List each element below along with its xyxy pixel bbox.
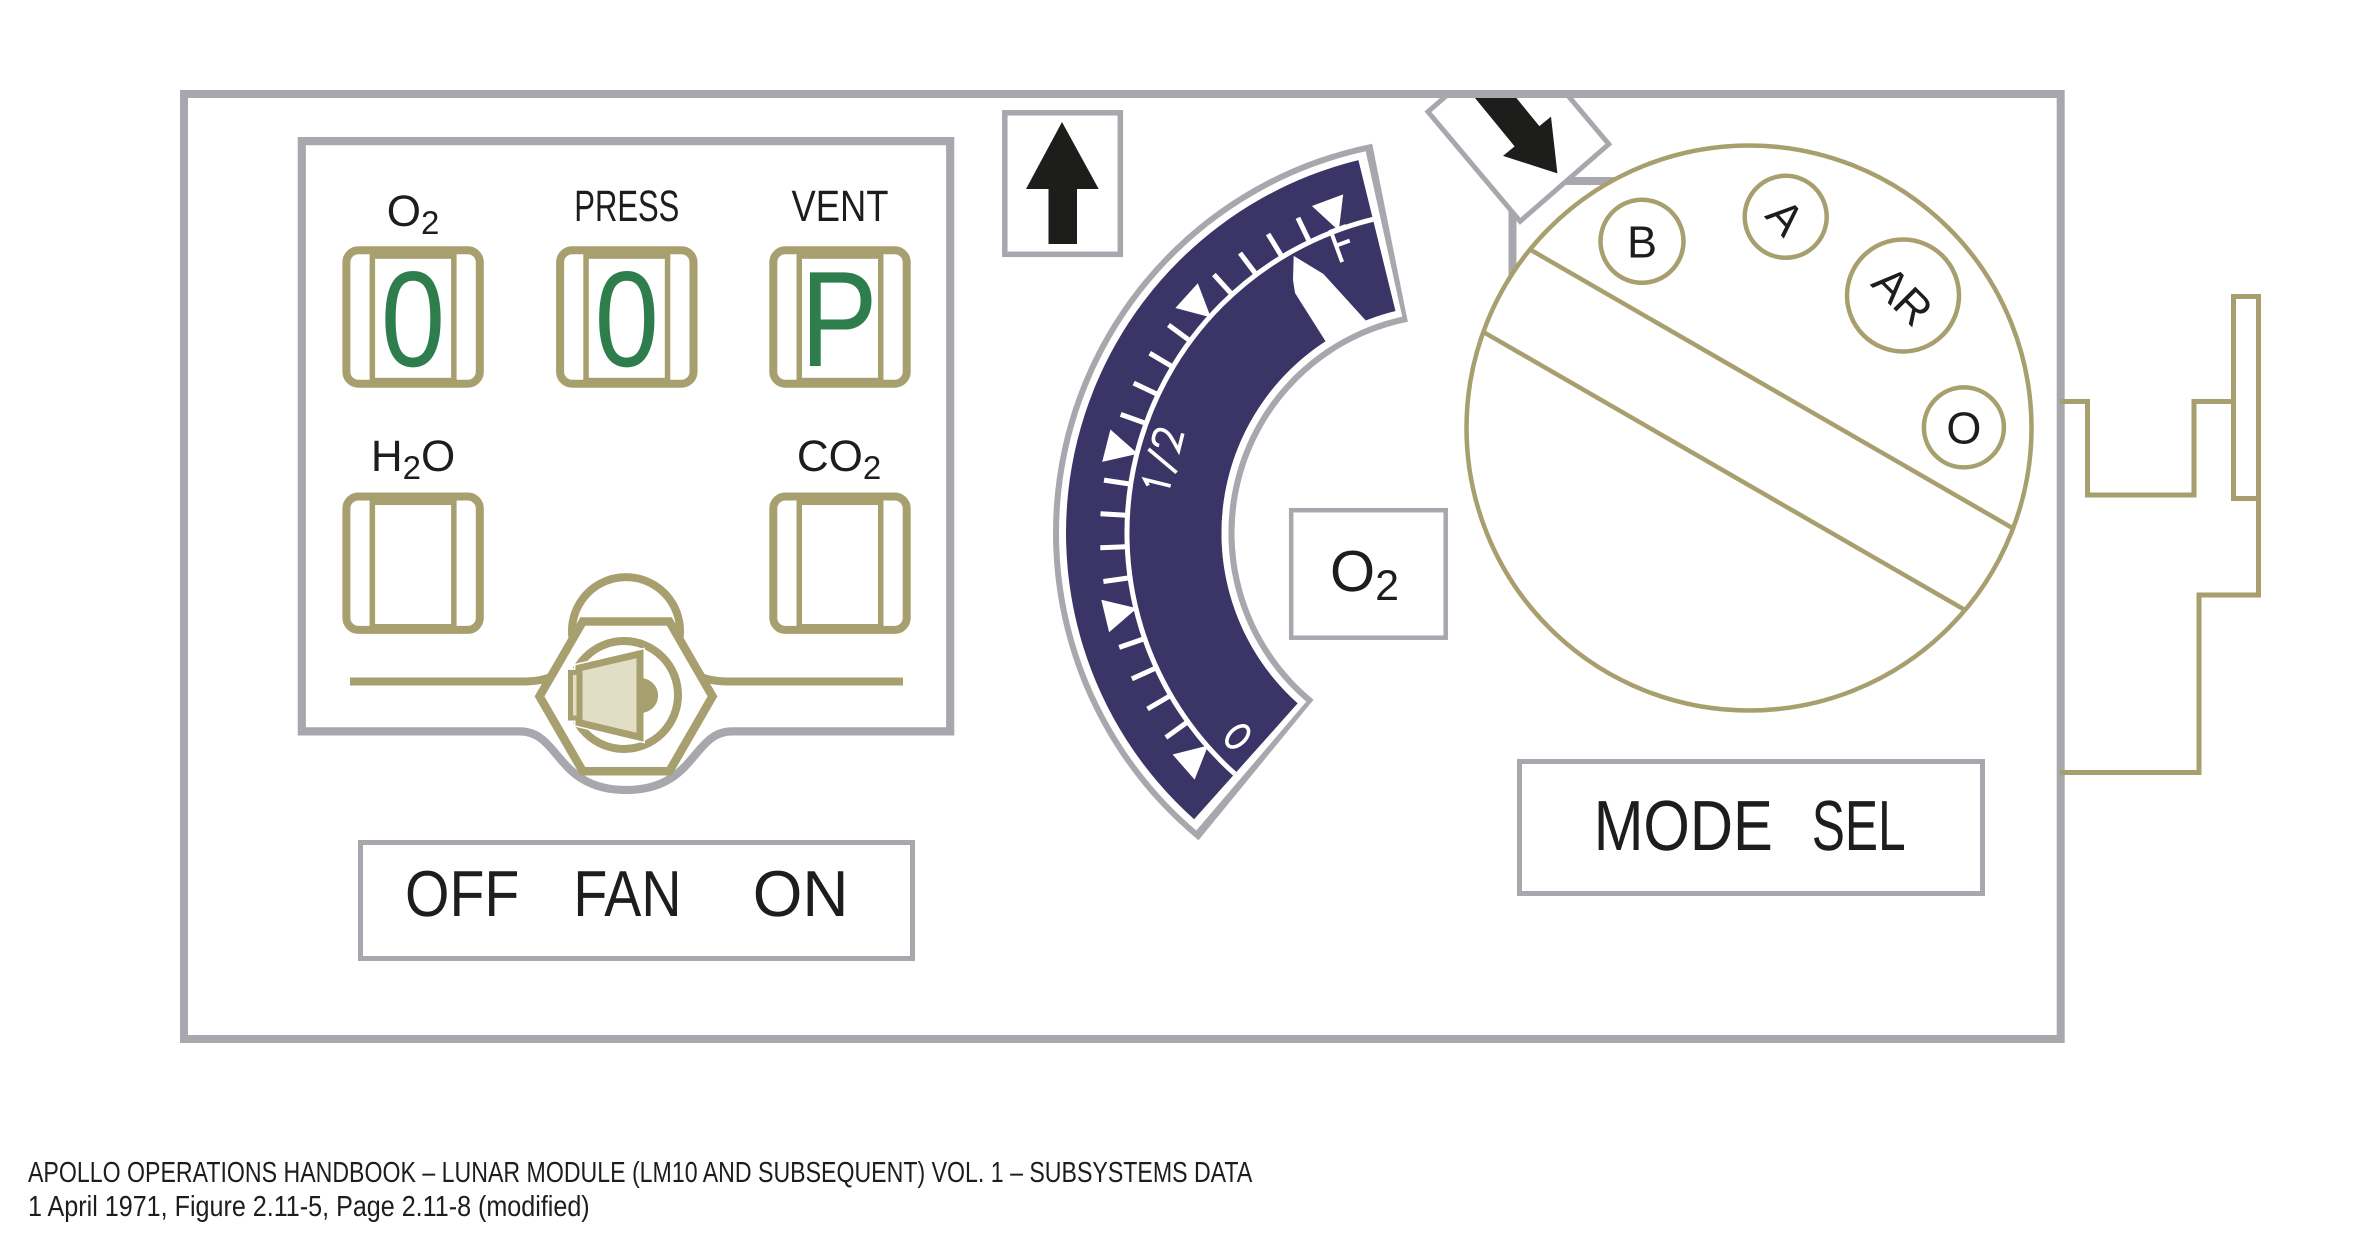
svg-text:APOLLO OPERATIONS HANDBOOK – L: APOLLO OPERATIONS HANDBOOK – LUNAR MODUL… (28, 1157, 1253, 1189)
svg-text:SEL: SEL (1812, 787, 1906, 866)
svg-text:MODE: MODE (1594, 787, 1773, 866)
svg-text:OFF: OFF (405, 857, 519, 930)
svg-text:PRESS: PRESS (574, 182, 679, 231)
svg-text:1 April 1971, Figure 2.11-5, P: 1 April 1971, Figure 2.11-5, Page 2.11-8… (28, 1191, 590, 1223)
svg-text:VENT: VENT (792, 182, 889, 231)
svg-text:ON: ON (753, 857, 849, 930)
svg-text:0: 0 (381, 243, 445, 395)
svg-text:0: 0 (595, 243, 659, 395)
svg-text:P: P (800, 243, 877, 395)
svg-text:O: O (1946, 402, 1981, 453)
svg-text:FAN: FAN (573, 857, 681, 930)
svg-text:B: B (1627, 216, 1657, 267)
